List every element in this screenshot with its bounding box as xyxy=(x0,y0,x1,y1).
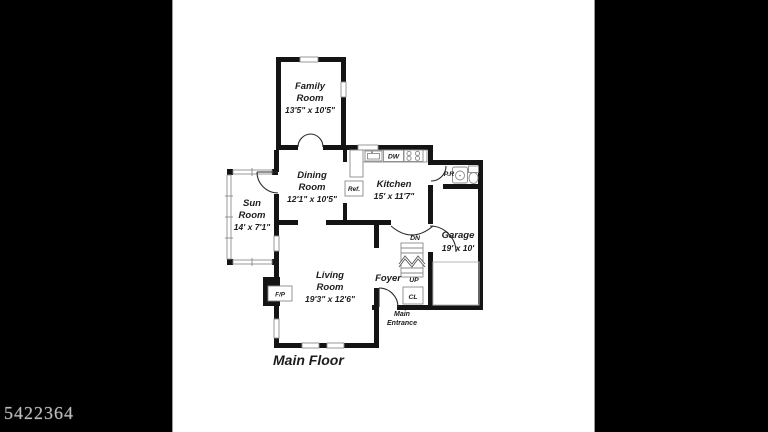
living-room-label2: Room xyxy=(317,282,344,293)
fireplace-label: F/P xyxy=(275,292,286,299)
family-top-window xyxy=(300,57,318,62)
stairs-up-label: UP xyxy=(409,277,419,284)
toilet-bowl-icon xyxy=(469,173,478,184)
powder-room-fixtures xyxy=(453,166,479,184)
dining-room-label2: Room xyxy=(299,182,326,193)
family-room-label2: Room xyxy=(297,93,324,104)
floorplan-drawing: F/P Family Room 13'5" x 10'5" Dining Roo… xyxy=(173,0,596,432)
powder-room-label: P.R xyxy=(444,171,455,178)
living-bottom-window-2 xyxy=(327,343,344,348)
sunroom-door-arc xyxy=(257,172,278,193)
living-side-window xyxy=(274,319,279,338)
garage-label: Garage xyxy=(442,230,475,241)
foyer-label: Foyer xyxy=(375,273,402,284)
stairs-down-label: DN xyxy=(410,235,421,242)
kitchen-label: Kitchen xyxy=(377,179,412,190)
garage-parking-pad xyxy=(433,262,479,305)
sunroom-bottom-glass xyxy=(233,260,272,264)
floor-plan-title: Main Floor xyxy=(273,352,345,368)
stove-icon xyxy=(404,150,423,162)
closet-label: CL xyxy=(408,294,417,301)
dishwasher-label: DW xyxy=(388,154,400,161)
family-french-door-right xyxy=(311,134,323,147)
garage-dims: 19' x 10' xyxy=(442,243,475,253)
kitchen-dims: 15' x 11'7" xyxy=(374,191,415,201)
main-entrance-label-2: Entrance xyxy=(387,320,417,327)
counter-return xyxy=(350,150,363,177)
walls xyxy=(227,57,483,348)
mls-watermark: 5422364 xyxy=(4,403,74,424)
dining-room-dims: 12'1" x 10'5" xyxy=(287,194,338,204)
sun-room-dims: 14' x 7'1" xyxy=(234,222,271,232)
refrigerator-label: Ref. xyxy=(348,186,360,193)
main-entrance-label-1: Main xyxy=(394,311,410,318)
toilet-tank-icon xyxy=(469,166,479,173)
family-room-dims: 13'5" x 10'5" xyxy=(285,105,336,115)
sun-room-label2: Room xyxy=(239,210,266,221)
family-side-window xyxy=(341,82,346,97)
fireplace: F/P xyxy=(268,286,292,301)
family-french-door-left xyxy=(298,134,311,147)
kitchen-window xyxy=(358,145,378,150)
dn-archway-arc xyxy=(391,226,433,235)
living-bottom-window-1 xyxy=(302,343,319,348)
west-wall-window-1 xyxy=(274,236,279,251)
floorplan-panel: F/P Family Room 13'5" x 10'5" Dining Roo… xyxy=(172,0,595,432)
dining-room-label: Dining xyxy=(297,170,327,181)
sun-room-label: Sun xyxy=(243,198,261,209)
photo-matte: F/P Family Room 13'5" x 10'5" Dining Roo… xyxy=(0,0,768,432)
front-door-arc xyxy=(379,288,398,307)
family-room-label: Family xyxy=(295,81,326,92)
living-room-dims: 19'3" x 12'6" xyxy=(305,294,356,304)
living-room-label: Living xyxy=(316,270,344,281)
